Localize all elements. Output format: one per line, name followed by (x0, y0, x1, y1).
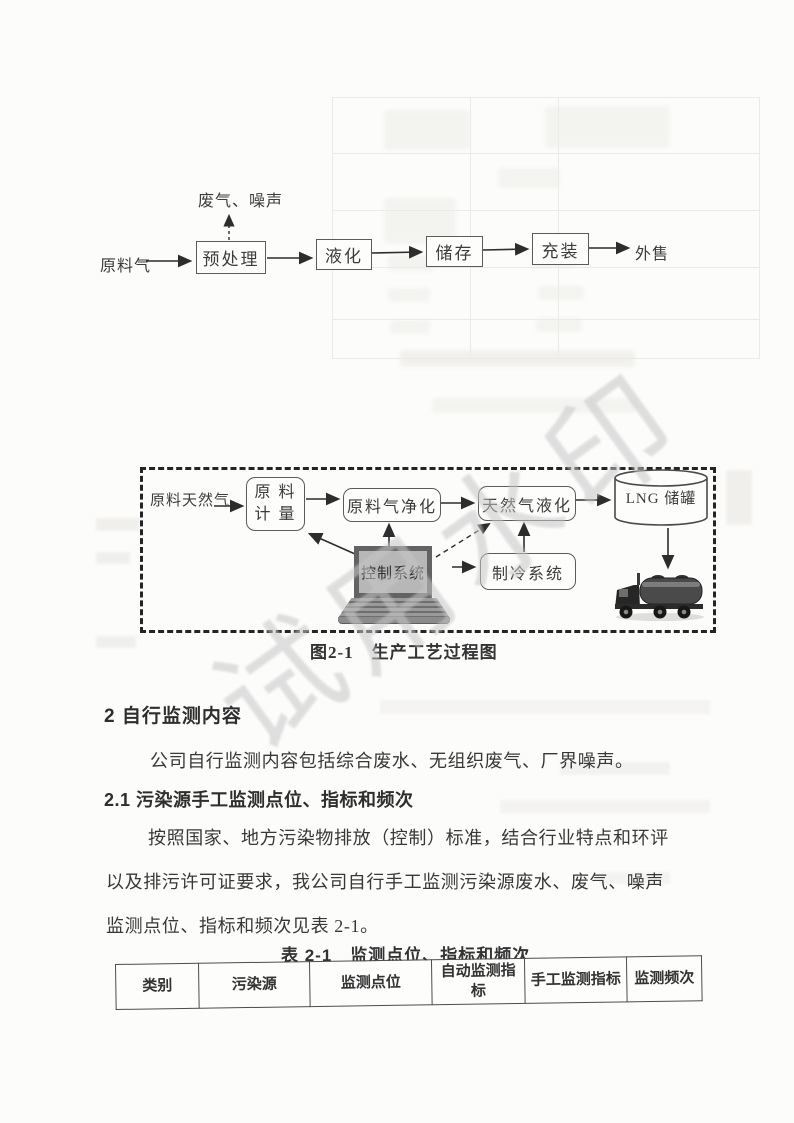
flowchart-step-pretreatment: 预处理 (196, 241, 266, 274)
metering-line2: 计 量 (254, 504, 296, 526)
document-page: 原料气 废气、噪声 预处理 液化 储存 充装 外售 原料天然气 原 料 计 量 … (0, 0, 794, 1123)
table-header-row: 类别 污染源 监测点位 自动监测指标 手工监测指标 监测频次 (116, 956, 703, 1010)
bleed-through-artifact (384, 110, 470, 150)
bleed-through-artifact (498, 168, 560, 188)
flowchart-step-filling: 充装 (532, 233, 589, 265)
bleed-through-artifact (536, 318, 582, 332)
bleed-through-artifact (538, 286, 584, 300)
col-header-category: 类别 (116, 963, 200, 1009)
flowchart-emissions-label: 废气、噪声 (198, 187, 283, 211)
bleed-through-artifact (96, 518, 140, 531)
bleed-through-artifact (545, 106, 670, 148)
flowchart-step-liquefaction: 液化 (316, 239, 372, 270)
bleed-through-artifact (388, 288, 430, 302)
purification-box: 原料气净化 (343, 488, 441, 522)
bleed-through-artifact (96, 552, 130, 564)
monitoring-table: 类别 污染源 监测点位 自动监测指标 手工监测指标 监测频次 (115, 955, 703, 1010)
col-header-manual-indicators: 手工监测指标 (524, 957, 627, 1004)
bleed-through-artifact (390, 320, 430, 334)
bleed-through-artifact (500, 800, 710, 813)
bleed-through-artifact (432, 398, 637, 413)
paragraph-standards-line3: 监测点位、指标和频次见表 2-1。 (106, 912, 379, 938)
flowchart-source-label: 原料气 (100, 252, 151, 276)
metering-line1: 原 料 (254, 482, 296, 504)
feed-gas-label: 原料天然气 (150, 489, 230, 510)
col-header-pollution-source: 污染源 (198, 962, 310, 1009)
col-header-monitoring-point: 监测点位 (309, 960, 432, 1007)
bleed-through-artifact (400, 350, 635, 367)
control-system-laptop: 控制系统 (338, 546, 450, 626)
lng-tank-label: LNG 储罐 (613, 487, 709, 508)
laptop-keyboard (338, 598, 450, 618)
section-heading-2: 2 自行监测内容 (104, 701, 242, 728)
section-heading-2-1: 2.1 污染源手工监测点位、指标和频次 (104, 786, 414, 812)
bleed-through-artifact (726, 470, 752, 525)
flowchart-step-storage: 储存 (426, 236, 483, 267)
col-header-frequency: 监测频次 (626, 956, 702, 1002)
laptop-base (338, 617, 450, 623)
laptop-screen: 控制系统 (354, 546, 432, 598)
paragraph-standards-line1: 按照国家、地方污染物排放（控制）标准，结合行业特点和环评 (148, 824, 669, 850)
metering-box: 原 料 计 量 (246, 477, 305, 531)
flowchart-output-label: 外售 (635, 240, 669, 264)
tanker-truck (610, 570, 706, 622)
bleed-through-artifact (380, 700, 710, 714)
figure-caption: 图2-1 生产工艺过程图 (310, 638, 498, 663)
col-header-auto-indicators: 自动监测指标 (431, 958, 525, 1004)
control-system-label: 控制系统 (361, 562, 425, 583)
paragraph-monitoring-scope: 公司自行监测内容包括综合废水、无组织废气、厂界噪声。 (150, 747, 634, 773)
paragraph-standards-line2: 以及排污许可证要求，我公司自行手工监测污染源废水、废气、噪声 (106, 868, 664, 894)
bleed-through-artifact (96, 636, 136, 648)
liquefaction-box: 天然气液化 (478, 486, 576, 521)
refrigeration-box: 制冷系统 (480, 553, 576, 590)
